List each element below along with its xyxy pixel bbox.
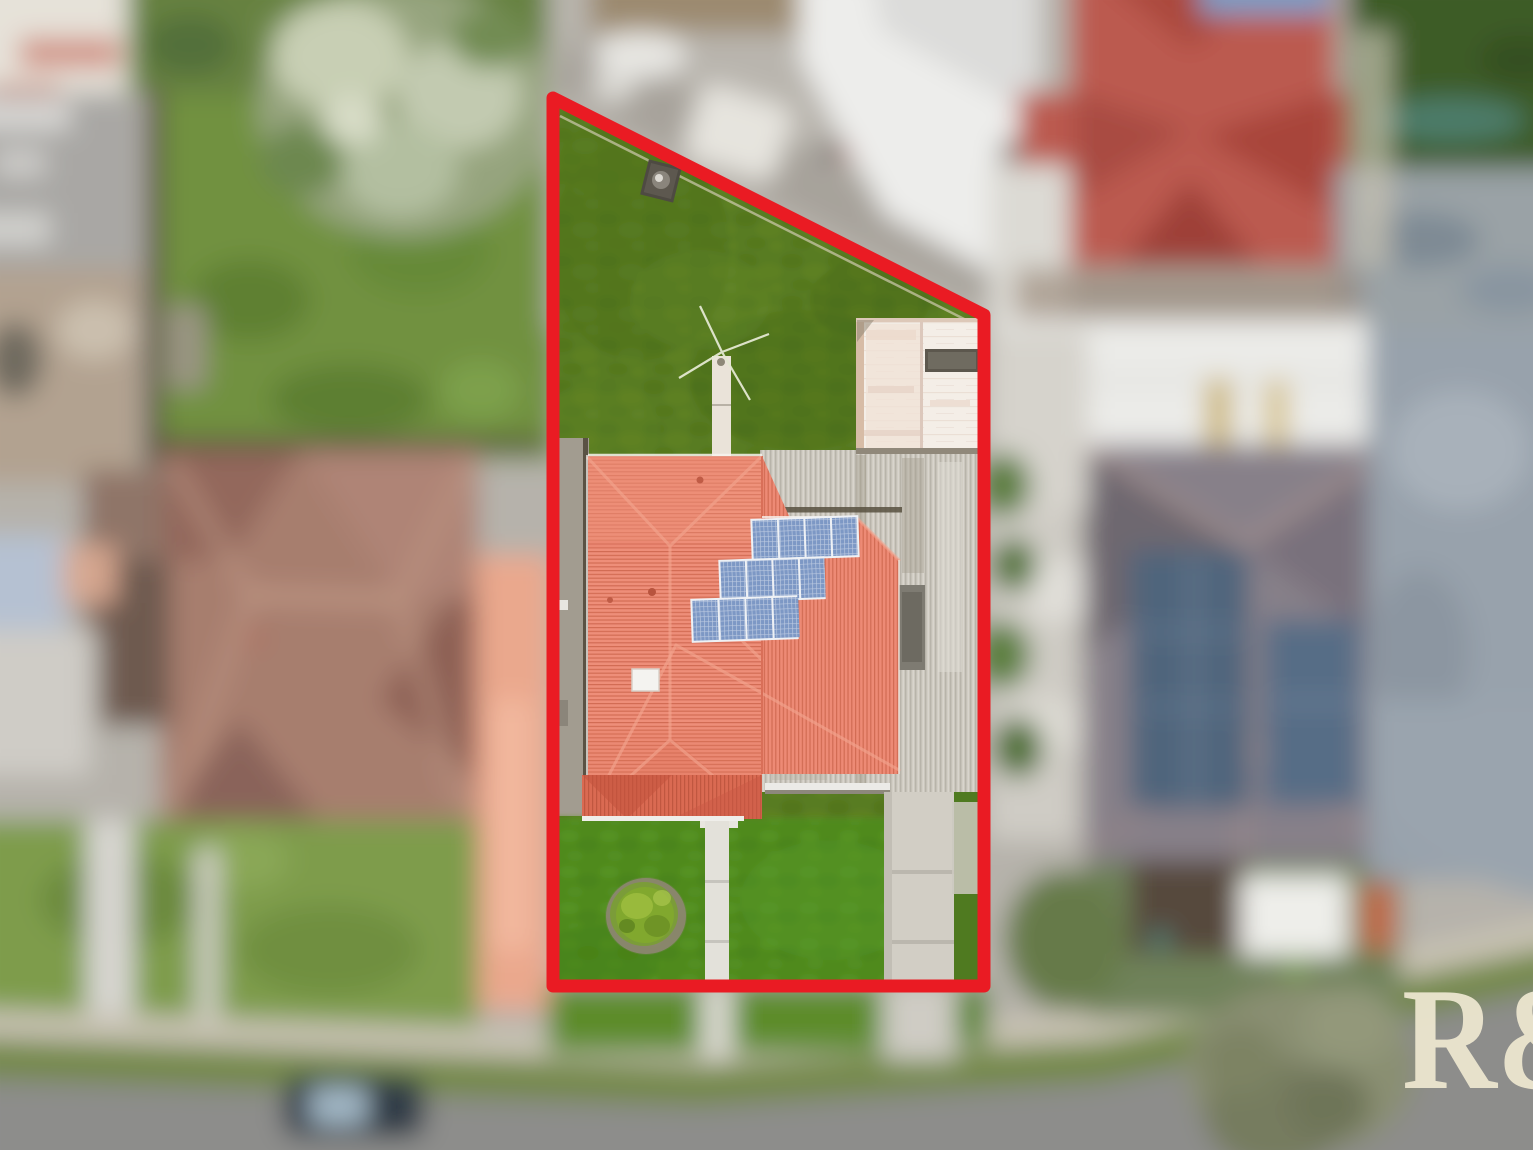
svg-text:R&: R& [1402,959,1533,1121]
